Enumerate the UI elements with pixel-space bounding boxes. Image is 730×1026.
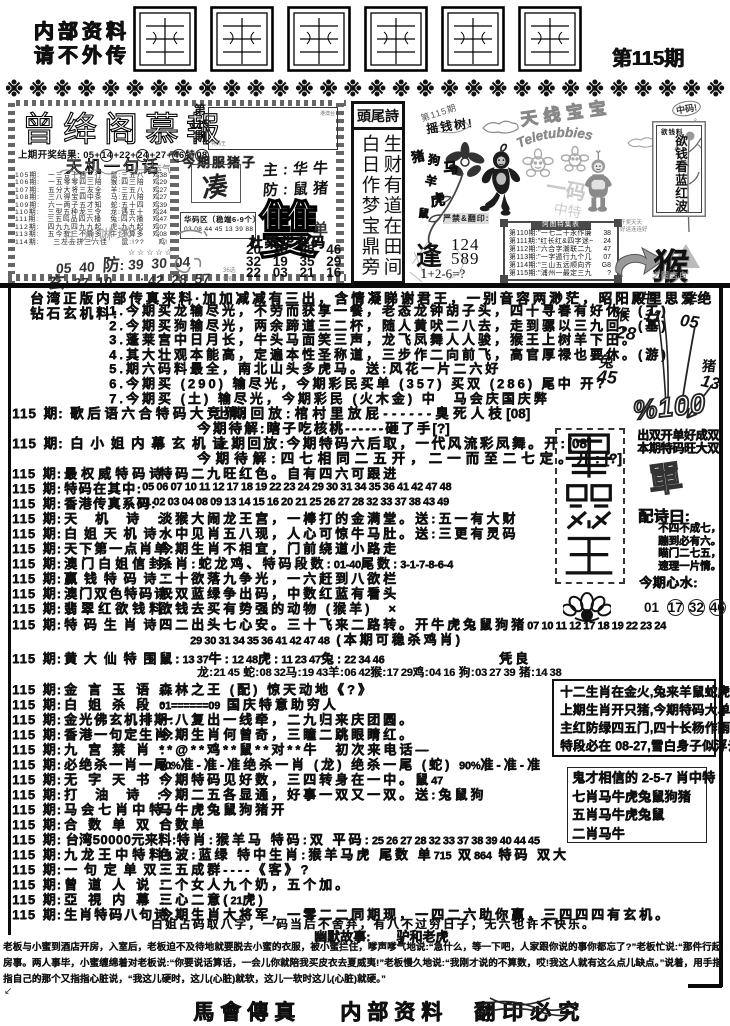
svg-text:中特: 中特 [552, 200, 582, 221]
svg-text:一码: 一码 [544, 176, 587, 205]
svg-text:Teletubbies: Teletubbies [515, 125, 595, 151]
